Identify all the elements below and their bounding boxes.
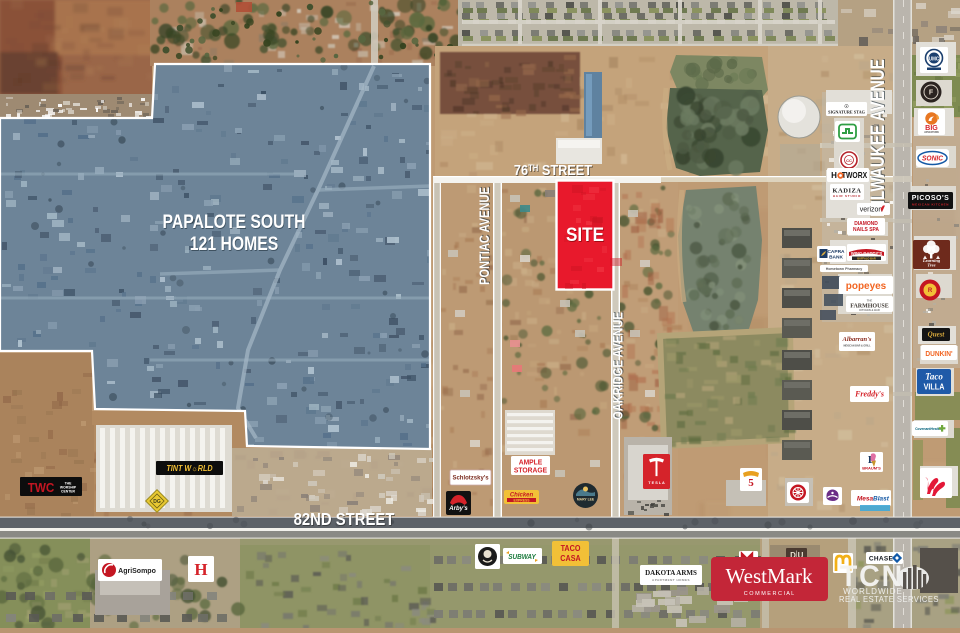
svg-text:H: H xyxy=(194,560,207,579)
svg-text:CAPRA: CAPRA xyxy=(827,249,845,255)
svg-text:Mesa: Mesa xyxy=(857,496,874,503)
svg-text:SIGNATURE STAG: SIGNATURE STAG xyxy=(828,110,865,115)
svg-text:Tree: Tree xyxy=(927,263,935,268)
svg-text:82ND STREET: 82ND STREET xyxy=(294,510,395,529)
svg-text:H: H xyxy=(831,171,837,180)
svg-text:HAIR STUDIO: HAIR STUDIO xyxy=(833,194,861,198)
svg-text:DUNKIN': DUNKIN' xyxy=(925,351,952,358)
svg-text:Arby's: Arby's xyxy=(448,506,468,512)
svg-text:DG: DG xyxy=(153,499,161,505)
svg-text:AgriSompo: AgriSompo xyxy=(118,568,156,575)
svg-text:MILWAUKEE AVENUE: MILWAUKEE AVENUE xyxy=(866,59,888,217)
svg-text:CC: CC xyxy=(846,158,852,163)
svg-text:NAILS SPA: NAILS SPA xyxy=(853,227,879,233)
svg-text:REAL ESTATE SERVICES: REAL ESTATE SERVICES xyxy=(839,595,939,604)
svg-text:F: F xyxy=(929,90,934,97)
svg-text:TINT W☼RLD: TINT W☼RLD xyxy=(166,464,213,473)
svg-text:SONIC: SONIC xyxy=(922,155,943,162)
svg-text:Hometown Pharmacy: Hometown Pharmacy xyxy=(826,267,863,271)
svg-text:ADVENTURE: ADVENTURE xyxy=(924,131,939,134)
svg-text:VILLA: VILLA xyxy=(924,382,945,391)
svg-text:APARTMENT HOMES: APARTMENT HOMES xyxy=(652,578,690,582)
svg-text:R: R xyxy=(928,288,933,294)
svg-text:Schlotzsky's: Schlotzsky's xyxy=(452,476,489,482)
svg-text:Taco: Taco xyxy=(925,372,943,382)
svg-text:popeyes: popeyes xyxy=(846,281,887,292)
svg-text:MEXICAN BAR & GRILL: MEXICAN BAR & GRILL xyxy=(843,345,871,348)
svg-text:WestMark: WestMark xyxy=(726,564,813,588)
svg-text:DAKOTA ARMS: DAKOTA ARMS xyxy=(645,569,697,577)
svg-text:verizon: verizon xyxy=(860,207,883,214)
svg-text:TACO: TACO xyxy=(561,544,581,553)
svg-text:Blast: Blast xyxy=(873,496,890,503)
svg-text:76TH STREET: 76TH STREET xyxy=(514,161,593,178)
svg-text:EXPRESS: EXPRESS xyxy=(513,498,530,502)
svg-text:T E S L A: T E S L A xyxy=(648,481,665,485)
svg-text:TWC: TWC xyxy=(28,480,55,495)
svg-text:PAPALOTE SOUTH: PAPALOTE SOUTH xyxy=(163,211,306,233)
svg-text:PONTIAC AVENUE: PONTIAC AVENUE xyxy=(477,187,492,285)
svg-text:KITCHEN & BAR: KITCHEN & BAR xyxy=(859,308,880,312)
svg-text:SITE: SITE xyxy=(566,224,604,245)
svg-text:Albarran's: Albarran's xyxy=(842,336,872,343)
svg-text:BANK: BANK xyxy=(829,255,843,261)
svg-text:Quest: Quest xyxy=(928,331,946,339)
svg-text:WING DADDY'S: WING DADDY'S xyxy=(851,251,882,256)
svg-text:MARY LEE: MARY LEE xyxy=(577,498,595,502)
svg-text:THE: THE xyxy=(867,299,873,303)
svg-text:TWORX: TWORX xyxy=(842,170,867,180)
svg-text:SUBWAY: SUBWAY xyxy=(508,554,537,562)
svg-text:BUFFALO BAR: BUFFALO BAR xyxy=(857,256,876,260)
svg-text:PICOSO'S: PICOSO'S xyxy=(912,195,950,202)
svg-text:OAKRIDGE AVENUE: OAKRIDGE AVENUE xyxy=(610,312,625,419)
svg-text:C O M M E R C I A L: C O M M E R C I A L xyxy=(744,591,794,597)
svg-text:121 HOMES: 121 HOMES xyxy=(190,233,278,255)
svg-text:BRAUM'S: BRAUM'S xyxy=(862,466,881,471)
svg-text:CovenantHealth: CovenantHealth xyxy=(915,427,941,431)
svg-text:CASA: CASA xyxy=(560,554,581,563)
svg-text:UMC: UMC xyxy=(929,56,940,62)
svg-text:STORAGE: STORAGE xyxy=(514,466,547,474)
svg-text:Freddy's: Freddy's xyxy=(854,390,884,399)
svg-text:CENTER: CENTER xyxy=(61,490,75,494)
svg-text:5: 5 xyxy=(748,477,754,489)
svg-text:MEXICAN KITCHEN: MEXICAN KITCHEN xyxy=(912,203,949,207)
